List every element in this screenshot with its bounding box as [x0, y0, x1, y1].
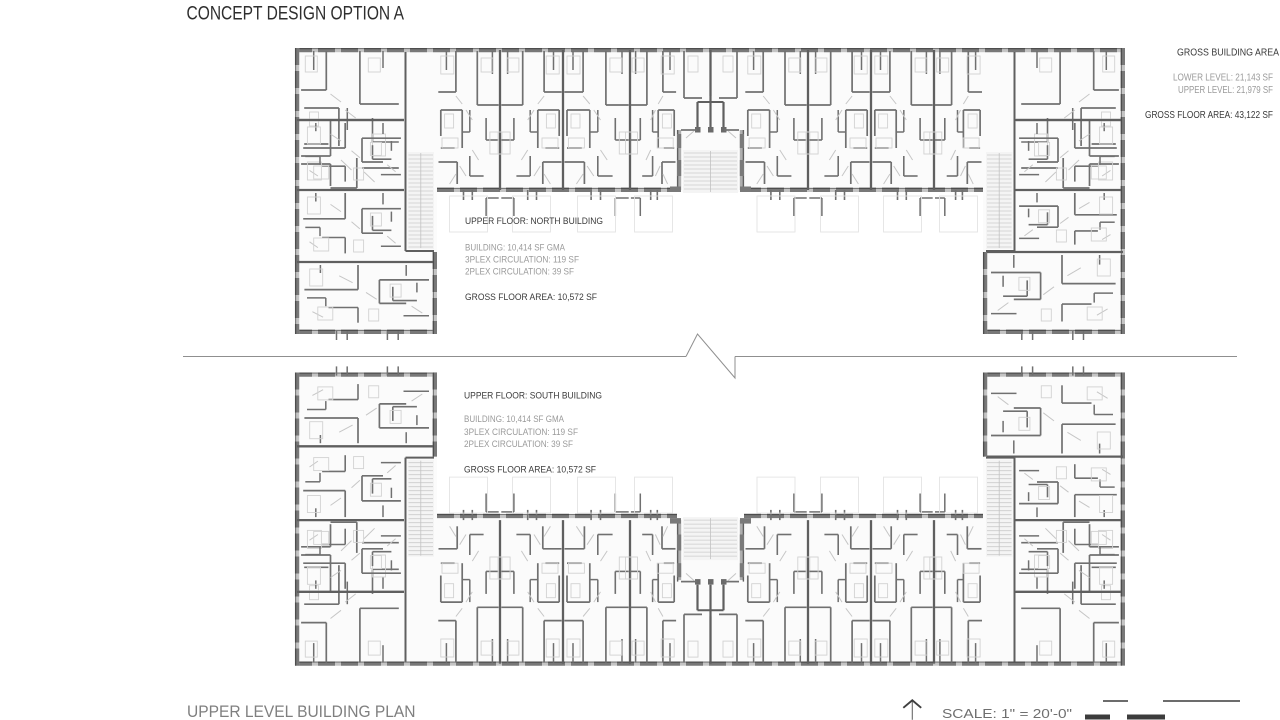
svg-text:UPPER FLOOR: NORTH BUILDING: UPPER FLOOR: NORTH BUILDING: [465, 216, 603, 227]
svg-text:BUILDING: 10,414 SF GMA: BUILDING: 10,414 SF GMA: [465, 243, 565, 253]
svg-text:LOWER LEVEL: 21,143 SF: LOWER LEVEL: 21,143 SF: [1173, 73, 1273, 84]
svg-text:CONCEPT DESIGN OPTION A: CONCEPT DESIGN OPTION A: [187, 4, 405, 25]
svg-text:3PLEX CIRCULATION: 119 SF: 3PLEX CIRCULATION: 119 SF: [465, 255, 579, 265]
svg-text:2PLEX CIRCULATION: 39 SF: 2PLEX CIRCULATION: 39 SF: [465, 267, 574, 277]
svg-text:GROSS FLOOR AREA: 43,122 SF: GROSS FLOOR AREA: 43,122 SF: [1145, 110, 1273, 121]
svg-text:UPPER FLOOR: SOUTH BUILDING: UPPER FLOOR: SOUTH BUILDING: [464, 391, 602, 402]
svg-text:GROSS FLOOR AREA: 10,572 SF: GROSS FLOOR AREA: 10,572 SF: [464, 465, 596, 475]
svg-text:UPPER LEVEL: 21,979 SF: UPPER LEVEL: 21,979 SF: [1178, 85, 1273, 96]
svg-text:SCALE: 1" = 20'-0": SCALE: 1" = 20'-0": [942, 707, 1072, 720]
svg-text:GROSS FLOOR AREA: 10,572 SF: GROSS FLOOR AREA: 10,572 SF: [465, 292, 597, 302]
svg-text:3PLEX CIRCULATION: 119 SF: 3PLEX CIRCULATION: 119 SF: [464, 427, 578, 437]
svg-text:BUILDING: 10,414 SF GMA: BUILDING: 10,414 SF GMA: [464, 414, 564, 424]
svg-text:UPPER LEVEL BUILDING PLAN: UPPER LEVEL BUILDING PLAN: [187, 702, 416, 720]
svg-text:GROSS BUILDING AREA: GROSS BUILDING AREA: [1177, 48, 1279, 59]
svg-text:2PLEX CIRCULATION: 39 SF: 2PLEX CIRCULATION: 39 SF: [464, 439, 573, 449]
